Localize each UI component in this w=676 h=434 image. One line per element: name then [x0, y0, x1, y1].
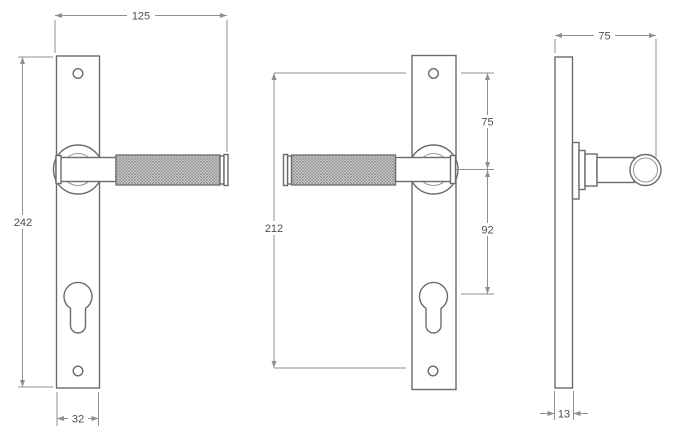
dimension-label: 32 — [72, 414, 84, 426]
side-profile-view — [555, 57, 661, 388]
lever-grip-knurled — [116, 155, 220, 185]
dimension-plate-thickness: 13 — [540, 391, 588, 421]
backplate-outline — [412, 56, 456, 390]
dimension-screw-centres: 212 — [259, 73, 406, 368]
rose-collar-side — [579, 151, 585, 190]
dimension-label: 212 — [265, 223, 283, 235]
screw-hole-bottom — [73, 366, 83, 376]
dimension-plate-height: 242 — [9, 57, 53, 387]
lever-neck — [56, 158, 116, 182]
screw-hole-bottom — [428, 366, 438, 376]
dimension-label: 92 — [481, 225, 493, 237]
lever-bar-side — [597, 158, 634, 183]
lever-neck — [396, 158, 456, 182]
rose-side — [573, 143, 580, 200]
dimension-label: 13 — [558, 409, 570, 421]
technical-drawing: 125 242 32 212 75 92 — [0, 0, 676, 434]
backplate-outline — [57, 56, 100, 388]
lever-neck-flange — [451, 156, 456, 184]
technical-drawing-page: 125 242 32 212 75 92 — [0, 0, 676, 434]
lever-neck-flange — [56, 156, 61, 184]
backplate-edge — [555, 57, 573, 388]
dimension-label: 75 — [598, 31, 610, 43]
lever-grip-knurled — [292, 155, 396, 185]
lever-end-cap — [224, 155, 228, 186]
lever-end-cap — [284, 155, 288, 186]
dimension-screw-to-handle: 75 — [456, 73, 498, 170]
screw-hole-top — [429, 69, 439, 79]
dimension-label: 75 — [481, 117, 493, 129]
neck-flange-side — [585, 154, 597, 186]
screw-hole-top — [73, 69, 83, 79]
front-view-handle-left — [284, 56, 459, 390]
dimension-label: 242 — [14, 217, 32, 229]
dimension-plate-width: 32 — [57, 392, 99, 426]
grip-end-outer-circle — [630, 155, 661, 186]
dimension-label: 125 — [132, 11, 150, 23]
dimension-handle-to-cylinder: 92 — [461, 170, 498, 294]
front-view-handle-right — [54, 56, 229, 388]
